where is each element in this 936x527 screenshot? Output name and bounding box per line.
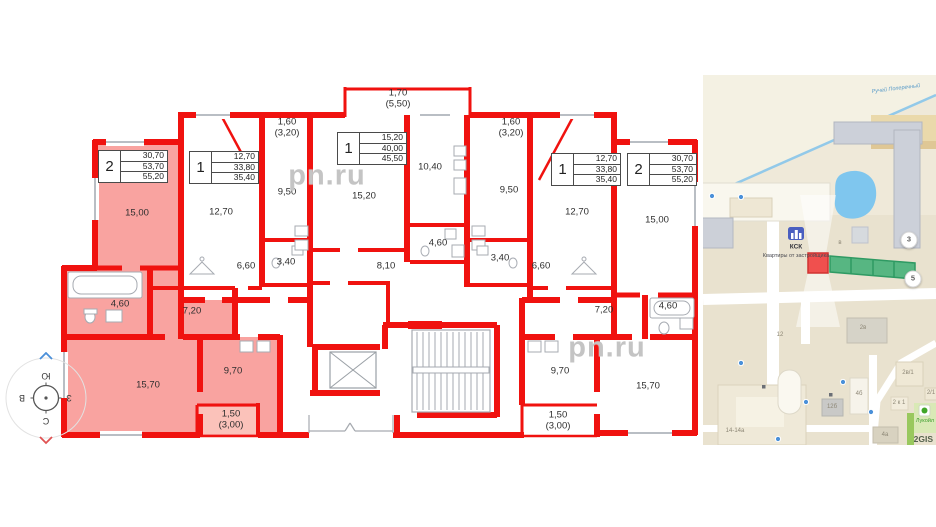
apartment-area-value: 45,50 [360, 154, 406, 164]
stove-icon [295, 226, 308, 236]
room-area-label: 4,60 [659, 300, 678, 311]
room-area-label: 12,70 [565, 206, 589, 217]
sink-icon [680, 318, 693, 329]
compass-letter-east: В [19, 393, 25, 403]
map-badge[interactable]: 5 [905, 271, 922, 288]
room-area-label: 3,40 [277, 256, 296, 267]
toilet-icon [659, 322, 669, 334]
room-area-label: 1,50 (3,00) [546, 410, 571, 433]
room-area-label: 9,70 [551, 365, 570, 376]
ksk-label: КСК [790, 244, 803, 251]
room-area-label: 6,60 [532, 260, 551, 271]
building [703, 218, 733, 248]
room-area-label: 1,70 (5,50) [386, 88, 411, 111]
apartment-rooms-count: 2 [628, 154, 650, 185]
room-area-label: 8,10 [377, 260, 396, 271]
apartment-rooms-count: 2 [99, 151, 121, 182]
map-building-label: 12 [777, 332, 784, 338]
apartment-info-table: 230,7053,7055,20 [627, 153, 697, 186]
staircase [412, 330, 490, 412]
room-area-label: 10,40 [418, 161, 442, 172]
map-building-label: 2в/1 [902, 370, 914, 376]
map-building-label: 12б [827, 404, 837, 410]
map-building-label: в [838, 240, 841, 246]
wardrobe-icon [190, 262, 214, 274]
apartment-areas: 30,7053,7055,20 [650, 154, 696, 185]
stove-icon [454, 146, 466, 156]
apartment-area-value: 55,20 [121, 172, 167, 182]
room-area-label: 15,70 [636, 380, 660, 391]
apartment-area-value: 12,70 [574, 154, 620, 165]
room-area-label: 1,60 (3,20) [499, 117, 524, 140]
stove-icon [528, 341, 541, 352]
building [852, 227, 868, 243]
room-area-label: 4,60 [111, 298, 130, 309]
toilet-icon [509, 258, 517, 268]
room-area-label: 1,50 (3,00) [219, 409, 244, 432]
map-building-label: 2в [860, 325, 867, 331]
apartment-area-value: 55,20 [650, 175, 696, 185]
map-attribution[interactable]: 2GIS [914, 434, 933, 444]
apartment-info-table: 112,7033,8035,40 [551, 153, 621, 186]
apartment-areas: 12,7033,8035,40 [574, 154, 620, 185]
apartment-area-value: 30,70 [121, 151, 167, 162]
apartment-area-value: 12,70 [212, 152, 258, 163]
compass-letter-south: Ю [41, 371, 50, 381]
building [778, 370, 801, 414]
apartment-areas: 30,7053,7055,20 [121, 151, 167, 182]
apartment-areas: 12,7033,8035,40 [212, 152, 258, 183]
room-area-label: 6,60 [237, 260, 256, 271]
floor-plan-drawing [0, 0, 703, 527]
apartment-info-table: 112,7033,8035,40 [189, 151, 259, 184]
apartment-info-table: 230,7053,7055,20 [98, 150, 168, 183]
room-area-label: 15,00 [645, 214, 669, 225]
lukoil-label: Лукойл [916, 418, 934, 424]
lukoil-icon [919, 405, 930, 416]
location-map[interactable]: Ручей Поперечный КСК Квартиры от застрой… [703, 75, 936, 445]
watermark: pn.ru [568, 332, 646, 365]
room-area-label: 15,00 [125, 207, 149, 218]
apartment-rooms-count: 1 [190, 152, 212, 183]
map-badge[interactable]: 3 [901, 232, 918, 249]
room-area-label: 1,60 (3,20) [275, 117, 300, 140]
building [894, 130, 920, 248]
stove-icon [472, 226, 485, 236]
floorplan-page: Ю В З С 15,004,607,2015,709,701,50 (3,00… [0, 0, 936, 527]
apartment-area-value: 15,20 [360, 133, 406, 144]
map-building-label: 2 к 1 [893, 400, 906, 406]
apartment-area-value: 35,40 [574, 175, 620, 185]
stove-icon [240, 341, 253, 352]
wardrobe-icon [572, 262, 596, 274]
room-area-label: 9,50 [500, 184, 519, 195]
developer-label: Квартиры от застройщика [763, 253, 829, 259]
map-building-label: 14-14а [726, 428, 745, 434]
apartment-area-value: 30,70 [650, 154, 696, 165]
entrance-door [309, 415, 393, 433]
room-area-label: 15,70 [136, 379, 160, 390]
building [847, 318, 887, 343]
apartment-areas: 15,2040,0045,50 [360, 133, 406, 164]
compass-rose: Ю В З С [0, 352, 96, 452]
apartment-area-value: 35,40 [212, 173, 258, 183]
ksk-icon [788, 227, 804, 240]
sink-icon [106, 310, 122, 322]
apartment-rooms-count: 1 [552, 154, 574, 185]
map-building-label: 4а [882, 432, 889, 438]
room-area-label: 12,70 [209, 206, 233, 217]
map-building-label: 2/1 [927, 390, 935, 396]
room-area-label: 3,40 [491, 252, 510, 263]
building [730, 198, 772, 217]
elevator-shaft [330, 352, 376, 388]
room-area-label: 7,20 [183, 305, 202, 316]
room-area-label: 4,60 [429, 237, 448, 248]
watermark: pn.ru [288, 160, 366, 193]
map-building-label: 4б [856, 391, 863, 397]
map-canvas [703, 75, 936, 445]
room-area-label: 7,20 [595, 304, 614, 315]
compass-letter-west: З [66, 393, 71, 403]
room-area-label: 9,70 [224, 365, 243, 376]
compass-letter-north: С [42, 416, 49, 426]
